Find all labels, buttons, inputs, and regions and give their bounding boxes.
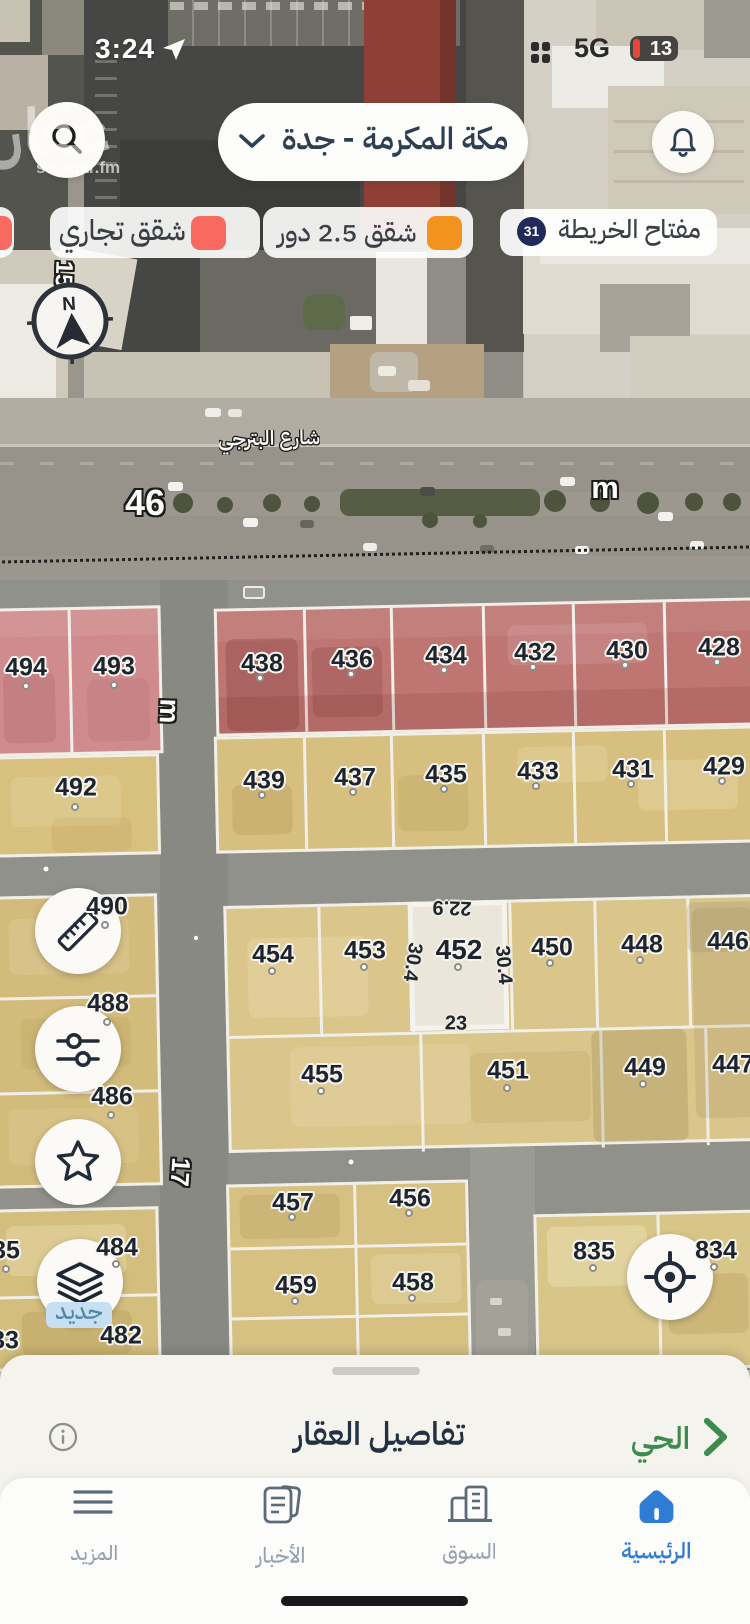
svg-text:N: N — [62, 294, 77, 316]
